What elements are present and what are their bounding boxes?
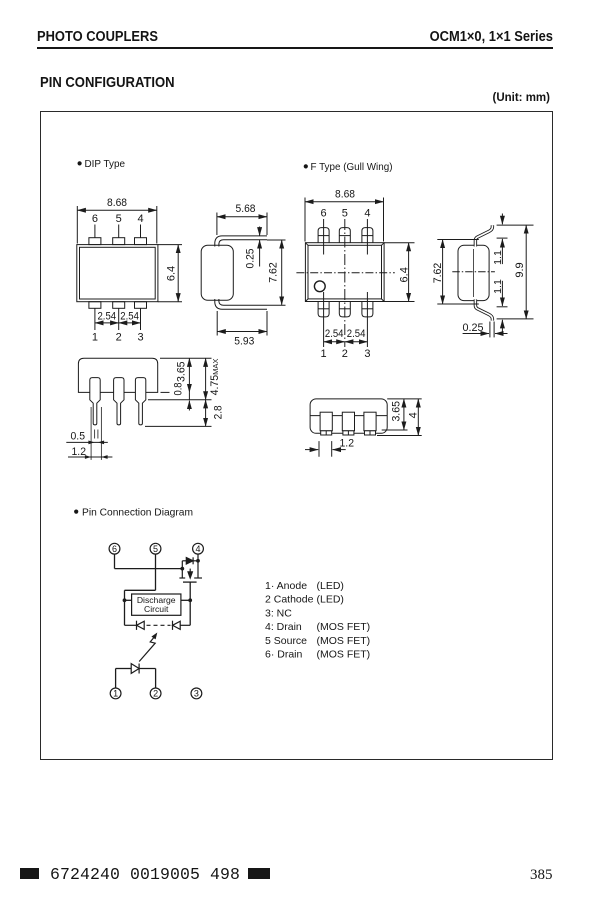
svg-text:1.1: 1.1 — [492, 279, 504, 294]
svg-text:6· Drain: 6· Drain — [265, 649, 303, 661]
svg-text:(MOS FET): (MOS FET) — [317, 635, 371, 647]
svg-text:0.25: 0.25 — [463, 322, 484, 334]
svg-text:6.4: 6.4 — [399, 267, 411, 282]
svg-text:5.68: 5.68 — [236, 203, 256, 215]
svg-text:2.8: 2.8 — [213, 405, 225, 419]
svg-text:4: 4 — [195, 544, 200, 554]
svg-text:1: 1 — [113, 689, 118, 699]
svg-text:5.93: 5.93 — [234, 336, 254, 348]
svg-text:(MOS FET): (MOS FET) — [317, 649, 371, 661]
svg-text:4: 4 — [137, 213, 143, 225]
svg-text:0.5: 0.5 — [71, 431, 86, 443]
svg-text:8.68: 8.68 — [107, 197, 127, 209]
svg-text:4: 4 — [407, 412, 419, 418]
svg-text:2: 2 — [116, 332, 122, 344]
svg-text:2.54: 2.54 — [347, 328, 366, 340]
svg-text:3: 3 — [364, 348, 370, 360]
svg-text:0.8: 0.8 — [172, 383, 184, 396]
svg-text:0.25: 0.25 — [245, 249, 257, 269]
svg-text:8.68: 8.68 — [335, 189, 355, 201]
svg-text:2: 2 — [342, 348, 348, 360]
svg-text:1.2: 1.2 — [72, 446, 87, 458]
svg-text:Circuit: Circuit — [144, 604, 169, 614]
svg-text:9.9: 9.9 — [514, 262, 526, 277]
svg-text:2: 2 — [153, 689, 158, 699]
svg-text:6: 6 — [112, 544, 117, 554]
svg-text:(MOS FET): (MOS FET) — [317, 621, 371, 633]
svg-text:6.4: 6.4 — [166, 266, 178, 281]
svg-text:6: 6 — [321, 208, 327, 220]
svg-text:2.54: 2.54 — [120, 311, 139, 323]
svg-text:2.54: 2.54 — [98, 311, 117, 323]
svg-text:1: 1 — [321, 348, 327, 360]
svg-text:5: 5 — [342, 208, 348, 220]
svg-text:2 Cathode: 2 Cathode — [265, 594, 314, 606]
svg-text:4: Drain: 4: Drain — [265, 621, 302, 633]
svg-text:3: NC: 3: NC — [265, 607, 292, 619]
svg-text:4.75MAX: 4.75MAX — [209, 359, 221, 396]
svg-text:DIP Type: DIP Type — [85, 158, 126, 170]
svg-text:7.62: 7.62 — [432, 263, 444, 284]
svg-text:5: 5 — [153, 544, 158, 554]
svg-text:1.2: 1.2 — [340, 438, 355, 450]
svg-text:6: 6 — [92, 213, 98, 225]
svg-text:1.1: 1.1 — [492, 250, 504, 265]
svg-text:F Type (Gull Wing): F Type (Gull Wing) — [311, 161, 393, 173]
svg-text:5: 5 — [116, 213, 122, 225]
svg-text:3: 3 — [194, 689, 199, 699]
svg-text:7.62: 7.62 — [268, 262, 280, 283]
svg-text:5 Source: 5 Source — [265, 635, 307, 647]
svg-text:(LED): (LED) — [317, 580, 344, 592]
svg-text:1· Anode: 1· Anode — [265, 580, 307, 592]
svg-text:2.54: 2.54 — [325, 328, 344, 340]
svg-text:Pin Connection Diagram: Pin Connection Diagram — [82, 507, 193, 519]
svg-text:4: 4 — [364, 208, 370, 220]
svg-text:3.65: 3.65 — [391, 401, 403, 422]
svg-text:3: 3 — [137, 332, 143, 344]
svg-text:3.65: 3.65 — [175, 361, 187, 382]
svg-text:(LED): (LED) — [317, 594, 344, 606]
svg-text:1: 1 — [92, 332, 98, 344]
